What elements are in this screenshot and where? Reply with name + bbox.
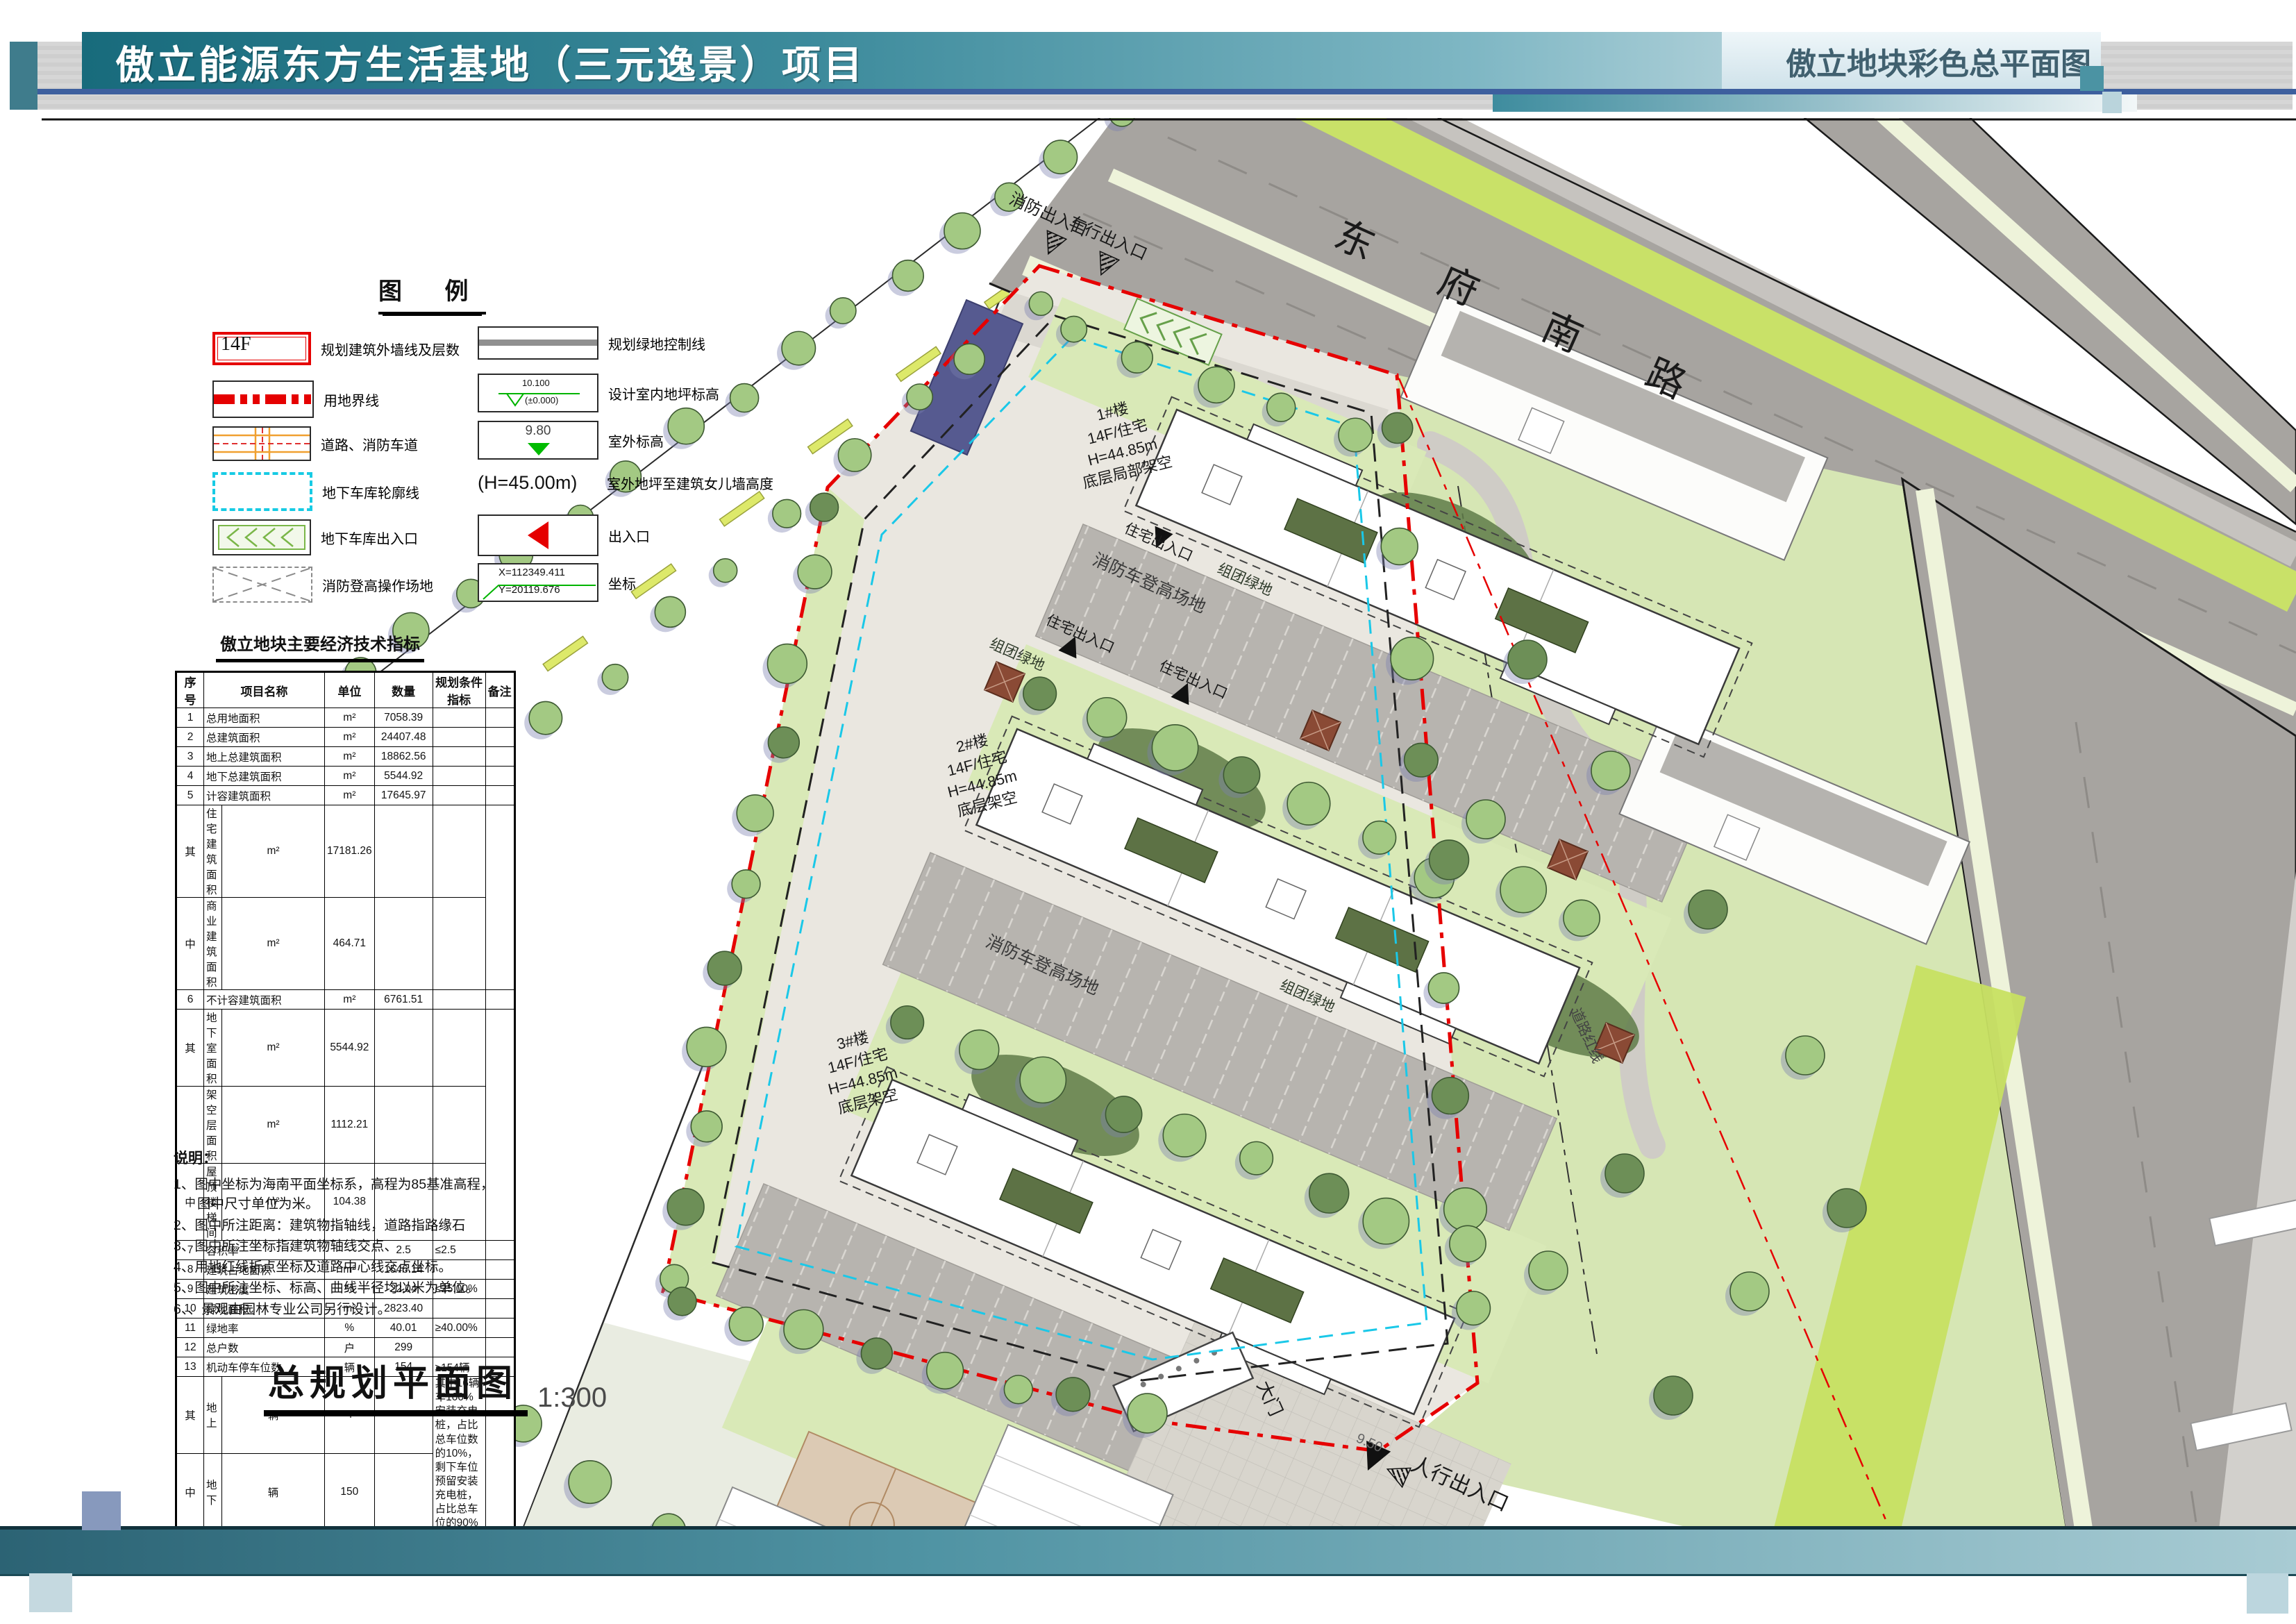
table-row: 其地下室面积m²5544.92: [176, 1010, 515, 1087]
note-item: 6、、景观由园林专业公司另行设计。: [174, 1300, 500, 1319]
deco-square: [82, 1491, 121, 1530]
cell: 5544.92: [374, 767, 433, 786]
table-row: 3地上总建筑面积m²18862.56: [176, 747, 515, 767]
legend-item-fire-area: 消防登高操作场地: [212, 567, 433, 603]
legend-item-entrance: 出入口: [478, 514, 650, 556]
cell: 辆: [222, 1453, 325, 1532]
legend-item-label: 消防登高操作场地: [322, 575, 433, 595]
legend-item-label: 坐标: [608, 573, 636, 593]
cell: [374, 805, 433, 898]
cell: 4: [176, 767, 204, 786]
cell: [433, 1010, 485, 1087]
legend-item-label: 出入口: [608, 526, 650, 546]
legend-item-label: 地下车库轮廓线: [322, 482, 419, 502]
cell: [433, 708, 485, 728]
cell: 464.71: [325, 898, 375, 990]
cell: [485, 747, 514, 767]
plan-title: 总规划平面图 1:300: [264, 1354, 607, 1416]
cell: 地上总建筑面积: [204, 747, 325, 767]
legend-item-coordinate: X=112349.411Y=20119.676坐标: [478, 563, 636, 602]
notes: 说明： 1、图中坐标为海南平面坐标系，高程为85基准高程，图中尺寸单位为米。2、…: [174, 1147, 500, 1321]
cell: 18862.56: [374, 747, 433, 767]
green-control-icon: [478, 326, 598, 360]
cell: m²: [325, 786, 375, 805]
table-row: 11绿地率%40.01≥40.00%: [176, 1319, 515, 1338]
legend-item-garage-ramp: 地下车库出入口: [212, 519, 418, 555]
cell: [433, 728, 485, 747]
cell: 地下室面积: [204, 1010, 222, 1087]
note-item: 2、图中所注距离：建筑物指轴线，道路指路缘石: [174, 1216, 500, 1235]
cell: 12: [176, 1338, 204, 1357]
cell: %: [325, 1319, 375, 1338]
column-header: 序号: [176, 672, 204, 708]
cell: 绿地率: [204, 1319, 325, 1338]
legend-title: 图 例: [378, 272, 486, 315]
legend-item-label: 地下车库出入口: [321, 528, 418, 548]
cell: m²: [325, 990, 375, 1010]
legend-item-label: 用地界线: [324, 390, 379, 410]
drawing-sheet: 东 府 南 路消防出入口车行出入口住宅出入口住宅出入口住宅出入口组团绿地组团绿地…: [0, 0, 2296, 1624]
cell: [433, 898, 485, 990]
cell: 3: [176, 747, 204, 767]
cell: ≥40.00%: [433, 1319, 485, 1338]
cell: 总用地面积: [204, 708, 325, 728]
cell: m²: [325, 728, 375, 747]
table-row: 1总用地面积m²7058.39: [176, 708, 515, 728]
cell: m²: [222, 898, 325, 990]
table-row: 其住宅建筑面积m²17181.26: [176, 805, 515, 898]
footer-bar: [0, 1526, 2296, 1576]
table-row: 4地下总建筑面积m²5544.92: [176, 767, 515, 786]
cell: [374, 1010, 433, 1087]
legend-item-label: 室外标高: [608, 430, 664, 451]
cell: 17181.26: [325, 805, 375, 898]
cell: 地下总建筑面积: [204, 767, 325, 786]
legend-item-boundary-line: 用地界线: [212, 380, 379, 418]
cell: 商业建筑面积: [204, 898, 222, 990]
cell: 24407.48: [374, 728, 433, 747]
cell: [485, 1319, 514, 1338]
cell: 中: [176, 898, 204, 990]
table-row: 5计容建筑面积m²17645.97: [176, 786, 515, 805]
legend-item-label: 规划建筑外墙线及层数: [321, 339, 460, 359]
legend-item-outdoor-level: 9.80室外标高: [478, 421, 664, 460]
coordinate-icon: X=112349.411Y=20119.676: [478, 563, 598, 602]
cell: 2: [176, 728, 204, 747]
cell: 不计容建筑面积: [204, 990, 325, 1010]
cell: 住宅建筑面积: [204, 805, 222, 898]
cell: [374, 898, 433, 990]
road-cross-icon: [212, 426, 311, 461]
legend-item-garage-outline: 地下车库轮廓线: [212, 472, 419, 511]
table-row: 2总建筑面积m²24407.48: [176, 728, 515, 747]
cell: [433, 805, 485, 898]
cell: 6: [176, 990, 204, 1010]
height-note-icon: (H=45.00m): [478, 472, 597, 494]
building-outline-icon: 14F: [212, 332, 311, 365]
table-row: 中商业建筑面积m²464.71: [176, 898, 515, 990]
legend-item-green-control: 规划绿地控制线: [478, 326, 705, 360]
cell: 其: [176, 805, 204, 898]
cell: m²: [325, 767, 375, 786]
table-header: 序号项目名称单位数量规划条件指标备注: [176, 672, 515, 708]
cell: [433, 990, 485, 1010]
column-header: 单位: [325, 672, 375, 708]
legend-item-label: 设计室内地坪标高: [608, 383, 719, 403]
garage-outline-icon: [212, 472, 312, 511]
legend-item-indoor-level: 10.100(±0.000)设计室内地坪标高: [478, 374, 719, 412]
column-header: 规划条件指标: [433, 672, 485, 708]
cell: 中: [176, 1453, 204, 1532]
cell: 11: [176, 1319, 204, 1338]
note-item: 4、用地红线折点坐标及道路中心线交点坐标。: [174, 1257, 500, 1277]
note-item: 3、图中所注坐标指建筑物轴线交点、: [174, 1237, 500, 1256]
indoor-level-icon: 10.100(±0.000): [478, 374, 598, 412]
cell: [485, 990, 514, 1010]
outdoor-level-icon: 9.80: [478, 421, 598, 460]
cell: 5: [176, 786, 204, 805]
legend-item-label: 道路、消防车道: [321, 434, 418, 454]
table-row: 6不计容建筑面积m²6761.51: [176, 990, 515, 1010]
deco-square: [2247, 1573, 2288, 1614]
cell: 150: [325, 1453, 375, 1532]
table-title: 傲立地块主要经济技术指标: [175, 630, 465, 662]
cell: m²: [222, 1010, 325, 1087]
legend-item-height-note: (H=45.00m)室外地坪至建筑女儿墙高度: [478, 472, 773, 494]
fire-area-icon: [212, 567, 312, 603]
entrance-icon: [478, 514, 598, 556]
legend-item-building-outline: 14F规划建筑外墙线及层数: [212, 332, 460, 365]
bottom-margin: [0, 1571, 2296, 1624]
cell: 地下: [204, 1453, 222, 1532]
column-header: 项目名称: [204, 672, 325, 708]
cell: 其: [176, 1377, 204, 1454]
deco-square: [29, 1573, 72, 1612]
cell: [374, 1453, 433, 1532]
cell: 其: [176, 1010, 204, 1087]
cell: 13: [176, 1357, 204, 1377]
garage-ramp-icon: [212, 519, 311, 555]
cell: 7058.39: [374, 708, 433, 728]
note-item: 5、图中所注坐标、标高、曲线半径均以米为单位。: [174, 1278, 500, 1298]
cell: [433, 786, 485, 805]
cell: 总建筑面积: [204, 728, 325, 747]
cell: m²: [325, 708, 375, 728]
cell: 1: [176, 708, 204, 728]
cell: [433, 767, 485, 786]
cell: [485, 767, 514, 786]
cell: [485, 786, 514, 805]
cell: m²: [325, 747, 375, 767]
column-header: 数量: [374, 672, 433, 708]
cell: 17645.97: [374, 786, 433, 805]
legend-item-road-cross: 道路、消防车道: [212, 426, 418, 461]
cell: [433, 747, 485, 767]
legend-item-label: 规划绿地控制线: [608, 333, 705, 353]
cell: 地上: [204, 1377, 222, 1454]
cell: 6761.51: [374, 990, 433, 1010]
legend-item-label: 室外地坪至建筑女儿墙高度: [607, 473, 773, 493]
plan-scale: 1:300: [537, 1382, 607, 1416]
plan-title-text: 总规划平面图: [264, 1354, 528, 1416]
note-item: 1、图中坐标为海南平面坐标系，高程为85基准高程，图中尺寸单位为米。: [174, 1175, 500, 1214]
boundary-line-icon: [212, 380, 314, 418]
notes-title: 说明：: [174, 1147, 500, 1168]
cell: [485, 708, 514, 728]
cell: m²: [222, 805, 325, 898]
cell: 40.01: [374, 1319, 433, 1338]
cell: [485, 728, 514, 747]
column-header: 备注: [485, 672, 514, 708]
cell: 计容建筑面积: [204, 786, 325, 805]
cell: 5544.92: [325, 1010, 375, 1087]
title-underline: [216, 659, 424, 662]
notes-list: 1、图中坐标为海南平面坐标系，高程为85基准高程，图中尺寸单位为米。2、图中所注…: [174, 1175, 500, 1319]
